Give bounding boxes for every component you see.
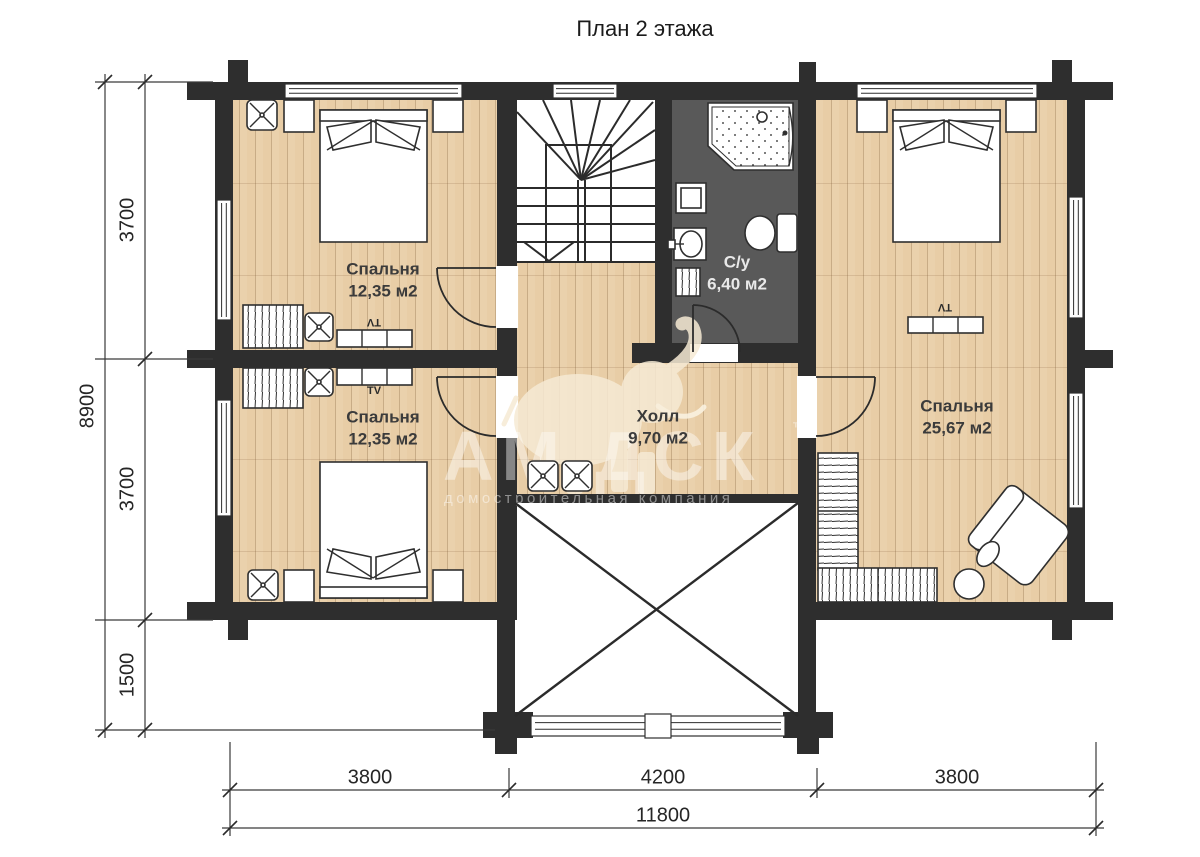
window [531,714,785,738]
bed [320,462,427,598]
room-area: 12,35 м2 [346,281,419,303]
dim-left-segment: 3700 [117,198,140,243]
towel-radiator [676,268,700,296]
log-corner [228,602,248,640]
dim-left-segment: 1500 [117,653,140,698]
page-title: План 2 этажа [576,16,713,42]
wall-bedroom-right-left [798,82,816,602]
nightstand [1006,100,1036,132]
tv-label: TV [367,316,381,328]
ceiling-light [528,461,558,491]
radiator [243,368,303,408]
log-corner [1085,602,1113,620]
dim-left-total: 8900 [77,384,100,429]
door-opening [496,266,518,328]
floor-plan-page: АМ ДСК ™ домостроительная компания [0,0,1200,857]
tv-stand [337,330,412,347]
ceiling-light [247,100,277,130]
log-corner [495,738,517,754]
dim-bottom-segment: 3800 [935,767,980,790]
wall-middle [215,350,517,368]
dim-bottom-segment: 3800 [348,767,393,790]
ceiling-light [305,313,333,341]
room-label-bathroom: С/у 6,40 м2 [707,252,767,297]
wall-right [1067,82,1085,620]
window [857,84,1037,98]
nightstand [284,570,314,602]
wall-bottom-left [215,602,517,620]
tv-stand [337,368,412,385]
log-corner [187,82,215,100]
wardrobe [818,453,858,570]
watermark-text: АМ ДСК [443,417,762,495]
nightstand [857,100,887,132]
bed [893,110,1000,242]
log-corner [1085,82,1113,100]
log-corner [797,738,819,754]
wall-hall-left [497,100,517,602]
side-table [954,569,984,599]
ceiling-light [305,368,333,396]
room-name: Холл [628,406,688,428]
nightstand [433,100,463,132]
room-area: 9,70 м2 [628,428,688,450]
window [217,400,231,516]
wardrobe [818,568,937,602]
dim-left-segment: 3700 [117,467,140,512]
log-corner [228,60,248,100]
tv-stand [908,317,983,333]
radiator [243,305,303,348]
room-name: С/у [707,252,767,274]
window [285,84,462,98]
floor-plan-drawing: АМ ДСК ™ домостроительная компания [0,0,1200,857]
log-corner [783,712,833,738]
log-corner [1085,350,1113,368]
sink [668,228,706,260]
washing-machine [676,183,706,213]
window [1069,393,1083,508]
room-label-bedroom-bottom-left: Спальня 12,35 м2 [346,407,419,452]
room-name: Спальня [346,407,419,429]
room-name: Спальня [920,396,993,418]
room-area: 12,35 м2 [346,429,419,451]
log-corner [187,602,215,620]
watermark-subtitle: домостроительная компания [444,490,733,507]
window [1069,197,1083,318]
dim-bottom-total: 11800 [636,805,690,828]
log-corner [1052,60,1072,100]
log-corner [799,62,816,82]
nightstand [284,100,314,132]
window [553,84,617,98]
wall-bottom-right [798,602,1085,620]
wall-void-right [798,602,816,714]
tv-label: TV [938,301,952,313]
tv-label: TV [367,385,381,397]
room-area: 6,40 м2 [707,274,767,296]
room-area: 25,67 м2 [920,418,993,440]
ceiling-light [248,570,278,600]
wall-void-left [497,602,515,714]
dim-bottom-segment: 4200 [641,767,686,790]
window-mullion [645,714,671,738]
room-label-bedroom-top-left: Спальня 12,35 м2 [346,259,419,304]
room-label-bedroom-right: Спальня 25,67 м2 [920,396,993,441]
watermark-tm: ™ [792,419,809,438]
log-corner [1052,602,1072,640]
bed [320,110,427,242]
window [217,200,231,320]
room-name: Спальня [346,259,419,281]
log-corner [483,712,533,738]
room-label-hall: Холл 9,70 м2 [628,406,688,451]
nightstand [433,570,463,602]
ceiling-light [562,461,592,491]
wall-bathroom-left [655,82,672,363]
